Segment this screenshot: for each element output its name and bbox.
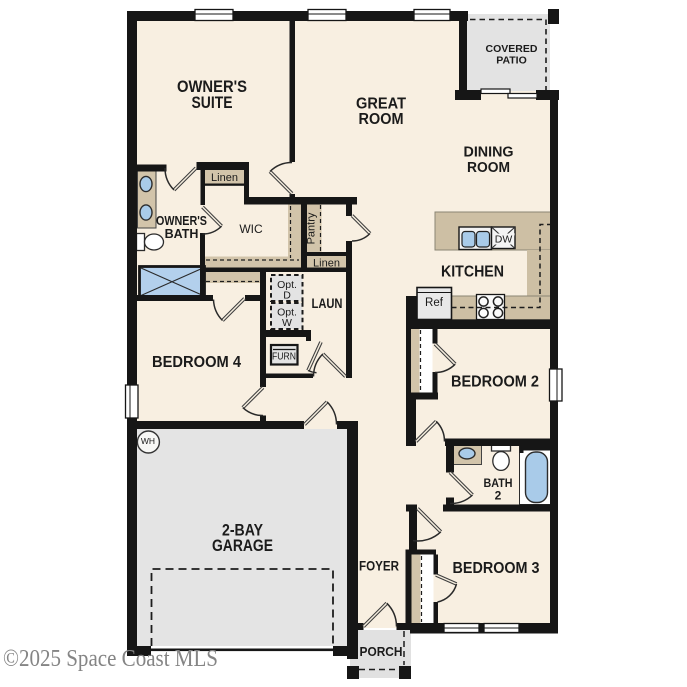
svg-text:DW: DW — [495, 234, 513, 246]
svg-text:SUITE: SUITE — [192, 94, 233, 112]
svg-text:DINING: DINING — [464, 145, 514, 161]
svg-text:COVERED: COVERED — [486, 43, 538, 55]
svg-text:BEDROOM 2: BEDROOM 2 — [451, 374, 539, 391]
svg-text:D: D — [283, 290, 291, 302]
svg-text:ROOM: ROOM — [359, 111, 404, 128]
svg-text:W: W — [282, 317, 292, 329]
svg-text:GARAGE: GARAGE — [212, 537, 273, 555]
svg-text:PORCH: PORCH — [360, 644, 403, 659]
svg-text:Pantry: Pantry — [306, 212, 318, 244]
svg-text:FURN: FURN — [272, 351, 296, 363]
svg-text:OWNER'S: OWNER'S — [156, 214, 207, 228]
svg-text:GREAT: GREAT — [356, 96, 406, 113]
svg-text:WIC: WIC — [239, 222, 263, 236]
svg-text:Linen: Linen — [313, 258, 340, 270]
svg-text:WH: WH — [141, 436, 155, 446]
svg-text:KITCHEN: KITCHEN — [441, 264, 504, 281]
svg-text:2: 2 — [495, 489, 502, 503]
svg-text:ROOM: ROOM — [467, 160, 510, 176]
svg-text:LAUN: LAUN — [312, 295, 343, 311]
svg-text:BEDROOM 3: BEDROOM 3 — [453, 560, 540, 577]
svg-text:Linen: Linen — [211, 172, 238, 184]
svg-text:BEDROOM 4: BEDROOM 4 — [152, 354, 241, 371]
svg-text:FOYER: FOYER — [359, 559, 399, 574]
svg-text:BATH: BATH — [165, 227, 199, 241]
svg-text:PATIO: PATIO — [496, 55, 527, 67]
svg-text:Ref: Ref — [425, 297, 444, 309]
svg-text:©2025 Space Coast MLS: ©2025 Space Coast MLS — [3, 645, 218, 672]
